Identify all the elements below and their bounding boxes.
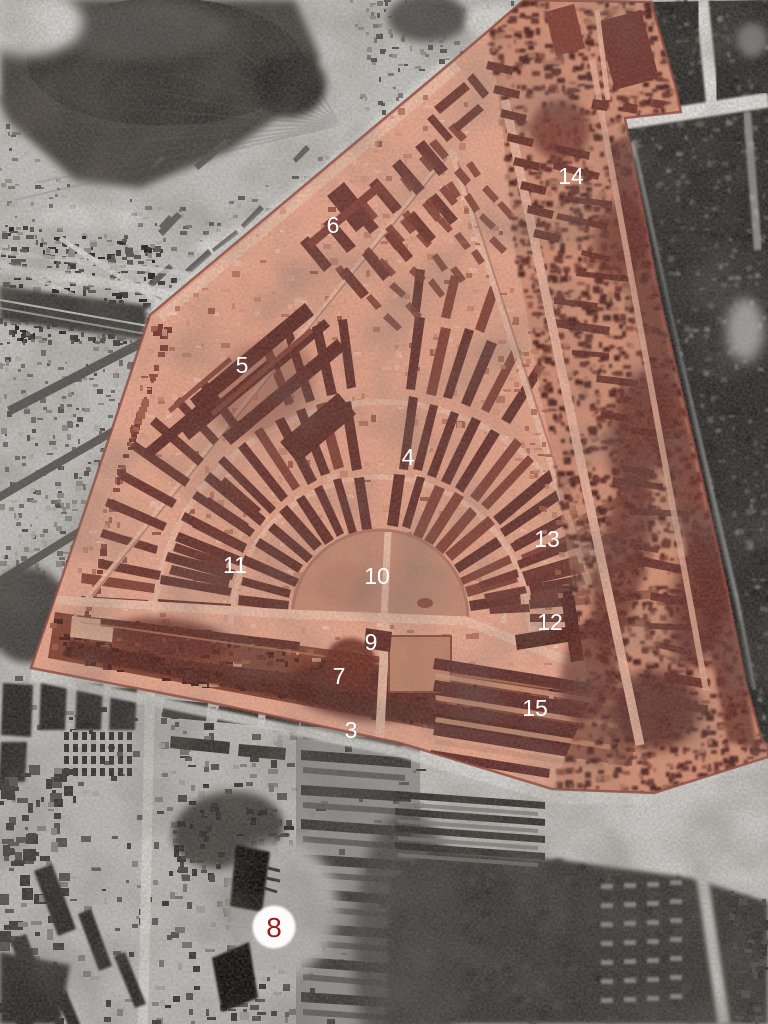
svg-text:3: 3 <box>345 717 358 743</box>
svg-text:13: 13 <box>534 526 560 552</box>
svg-text:14: 14 <box>558 163 584 189</box>
svg-text:5: 5 <box>236 352 249 378</box>
svg-text:4: 4 <box>402 444 415 470</box>
svg-text:15: 15 <box>522 695 548 721</box>
svg-text:12: 12 <box>537 609 563 635</box>
svg-text:10: 10 <box>364 563 390 589</box>
svg-text:6: 6 <box>327 212 340 238</box>
svg-text:7: 7 <box>333 663 346 689</box>
svg-text:11: 11 <box>223 552 247 578</box>
svg-text:8: 8 <box>266 912 282 943</box>
svg-text:9: 9 <box>365 629 378 655</box>
